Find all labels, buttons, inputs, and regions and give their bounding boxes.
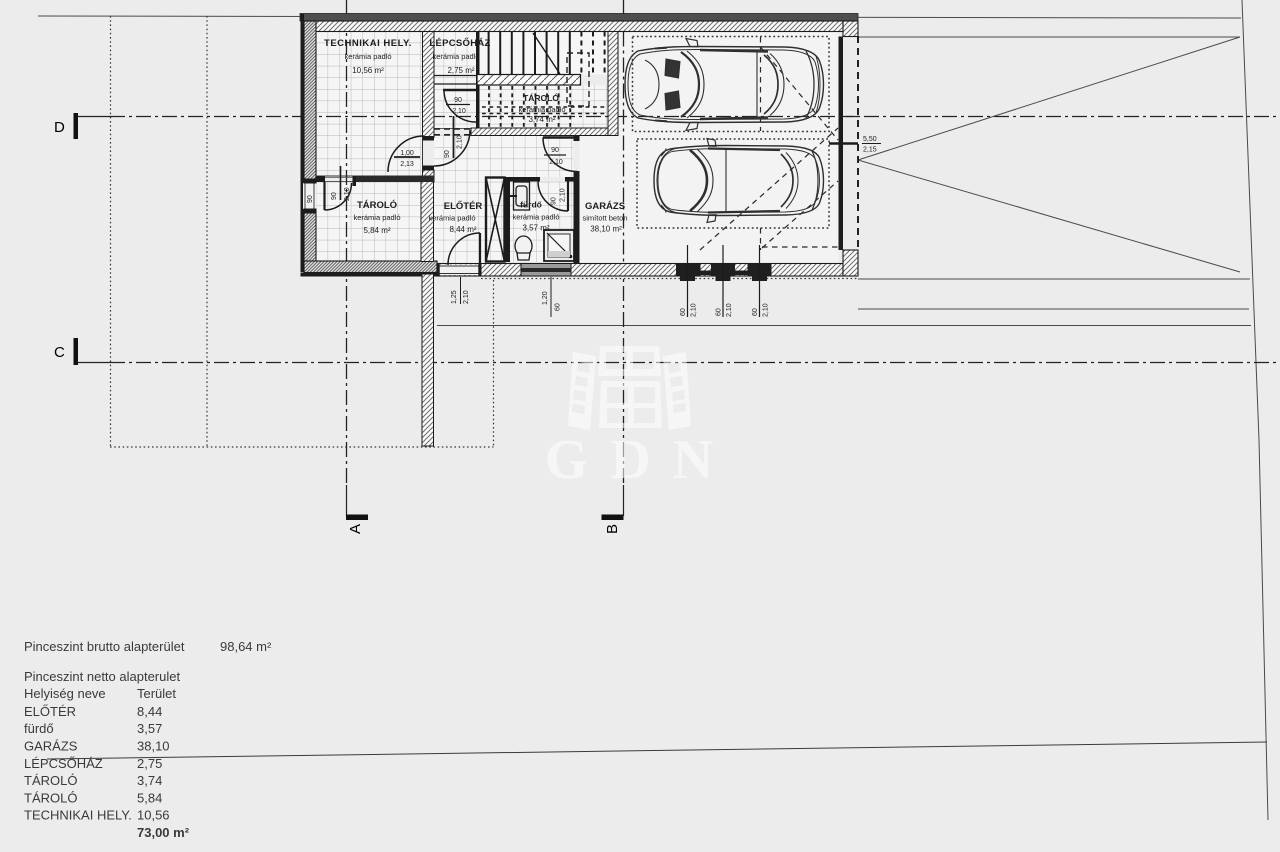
svg-text:60: 60: [555, 303, 562, 311]
svg-text:kerámia padló: kerámia padló: [432, 52, 479, 61]
svg-text:ELŐTÉR: ELŐTÉR: [444, 200, 483, 212]
svg-text:2,10: 2,10: [344, 187, 351, 201]
svg-text:fürdő: fürdő: [520, 200, 542, 210]
svg-text:kerámia padló: kerámia padló: [428, 214, 475, 223]
svg-text:2,13: 2,13: [400, 161, 414, 168]
svg-text:2,75 m²: 2,75 m²: [447, 66, 474, 75]
svg-text:2,10: 2,10: [726, 303, 733, 317]
svg-text:TECHNIKAI HELY.: TECHNIKAI HELY.: [324, 38, 412, 49]
svg-text:2,10: 2,10: [763, 303, 770, 317]
svg-text:C: C: [54, 344, 65, 361]
svg-text:kerámia padló: kerámia padló: [353, 213, 400, 222]
svg-text:8,44 m²: 8,44 m²: [449, 225, 476, 234]
svg-text:simított beton: simított beton: [582, 214, 627, 223]
svg-text:GARÁZS: GARÁZS: [24, 739, 78, 754]
svg-text:3,74: 3,74: [137, 773, 162, 788]
svg-text:fürdő: fürdő: [24, 721, 54, 736]
svg-text:98,64 m²: 98,64 m²: [220, 639, 272, 654]
svg-text:90: 90: [444, 150, 451, 158]
svg-text:73,00 m²: 73,00 m²: [137, 825, 190, 840]
svg-text:Helyiség neve: Helyiség neve: [24, 686, 106, 701]
svg-text:3,74 m²: 3,74 m²: [528, 115, 555, 124]
svg-text:60: 60: [716, 308, 723, 316]
svg-text:3,57: 3,57: [137, 721, 162, 736]
svg-text:TECHNIKAI HELY.: TECHNIKAI HELY.: [24, 808, 132, 823]
svg-text:1,25: 1,25: [451, 290, 458, 304]
svg-text:Pinceszint netto alapterulet: Pinceszint netto alapterulet: [24, 669, 180, 684]
svg-text:60: 60: [752, 308, 759, 316]
svg-text:Pinceszint brutto alapterület: Pinceszint brutto alapterület: [24, 639, 185, 654]
svg-text:2,10: 2,10: [549, 159, 563, 166]
svg-text:10,56 m²: 10,56 m²: [352, 66, 384, 75]
svg-text:ELŐTÉR: ELŐTÉR: [24, 704, 76, 719]
svg-text:38,10: 38,10: [137, 739, 170, 754]
svg-text:2,10: 2,10: [457, 135, 464, 149]
svg-text:TÁROLÓ: TÁROLÓ: [523, 92, 559, 103]
svg-text:kerámia padló: kerámia padló: [344, 52, 391, 61]
svg-text:2,10: 2,10: [691, 303, 698, 317]
svg-text:10,56: 10,56: [137, 808, 170, 823]
svg-text:3,57 m²: 3,57 m²: [522, 224, 549, 233]
svg-text:38,10 m²: 38,10 m²: [590, 225, 622, 234]
svg-text:90: 90: [454, 97, 462, 104]
svg-text:90: 90: [551, 147, 559, 154]
svg-text:90: 90: [307, 195, 314, 203]
svg-text:60: 60: [680, 308, 687, 316]
svg-text:1,20: 1,20: [542, 291, 549, 305]
svg-text:TÁROLÓ: TÁROLÓ: [24, 773, 77, 788]
svg-text:2,10: 2,10: [560, 188, 567, 202]
svg-text:kerámia padló: kerámia padló: [518, 105, 565, 114]
svg-text:TÁROLÓ: TÁROLÓ: [357, 199, 397, 211]
svg-text:TÁROLÓ: TÁROLÓ: [24, 791, 77, 806]
svg-text:A: A: [347, 524, 364, 534]
svg-text:8,44: 8,44: [137, 704, 162, 719]
svg-text:GDN: GDN: [545, 429, 735, 491]
svg-text:LÉPCSŐHÁZ: LÉPCSŐHÁZ: [429, 37, 490, 49]
svg-text:2,75: 2,75: [137, 756, 162, 771]
svg-text:2,10: 2,10: [463, 290, 470, 304]
svg-text:kerámia padló: kerámia padló: [512, 213, 559, 222]
svg-text:5,50: 5,50: [863, 136, 877, 143]
svg-text:5,84 m²: 5,84 m²: [363, 226, 390, 235]
svg-text:LÉPCSŐHÁZ: LÉPCSŐHÁZ: [24, 756, 103, 771]
svg-text:90: 90: [551, 197, 558, 205]
svg-text:5,84: 5,84: [137, 791, 162, 806]
svg-text:2,10: 2,10: [452, 108, 466, 115]
svg-text:D: D: [54, 119, 65, 136]
svg-text:GARÁZS: GARÁZS: [585, 201, 625, 212]
svg-text:B: B: [604, 524, 621, 534]
svg-text:90: 90: [331, 192, 338, 200]
svg-text:Terület: Terület: [137, 686, 176, 701]
svg-text:2,15: 2,15: [863, 147, 877, 154]
svg-text:1,00: 1,00: [400, 150, 414, 157]
